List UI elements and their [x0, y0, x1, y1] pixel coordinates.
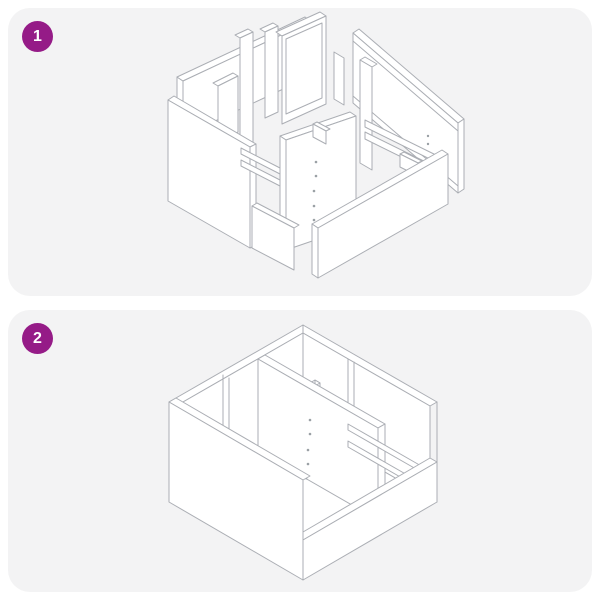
- step1-panel: 1: [8, 8, 592, 296]
- instruction-sheet: { "document": { "type": "assembly-instru…: [0, 0, 600, 600]
- assembled-cabinet-group: [169, 325, 437, 580]
- step1-exploded-parts-diagram: [8, 8, 592, 296]
- step2-assembled-cabinet-diagram: [8, 310, 592, 592]
- step2-panel: 2: [8, 310, 592, 592]
- middle-framed-panel: [276, 12, 326, 124]
- exploded-parts-group: [168, 12, 464, 278]
